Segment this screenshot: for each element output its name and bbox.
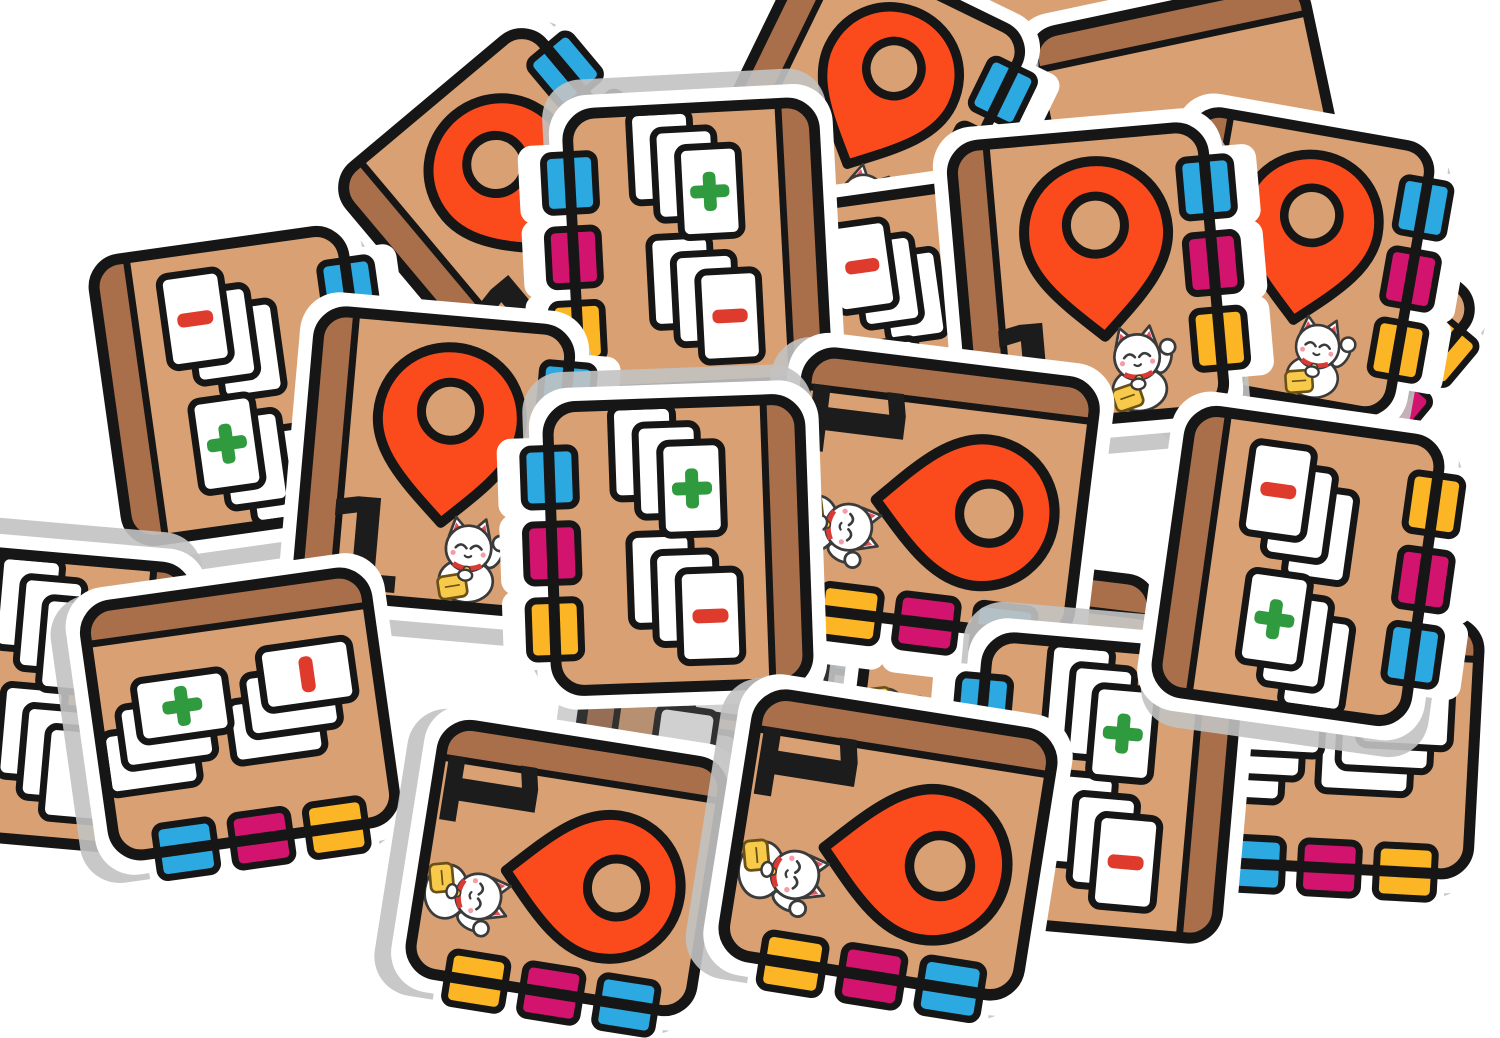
tile-pin-tile-bottom-left: 1 <box>364 697 748 1038</box>
tile-cards-tile-center <box>494 363 829 712</box>
tile-cards-tile-bottom-left <box>45 548 425 915</box>
tile-pile-svg: 1 1 <box>0 0 1500 1038</box>
tile-pile-scene: 1 1 <box>0 0 1500 1038</box>
